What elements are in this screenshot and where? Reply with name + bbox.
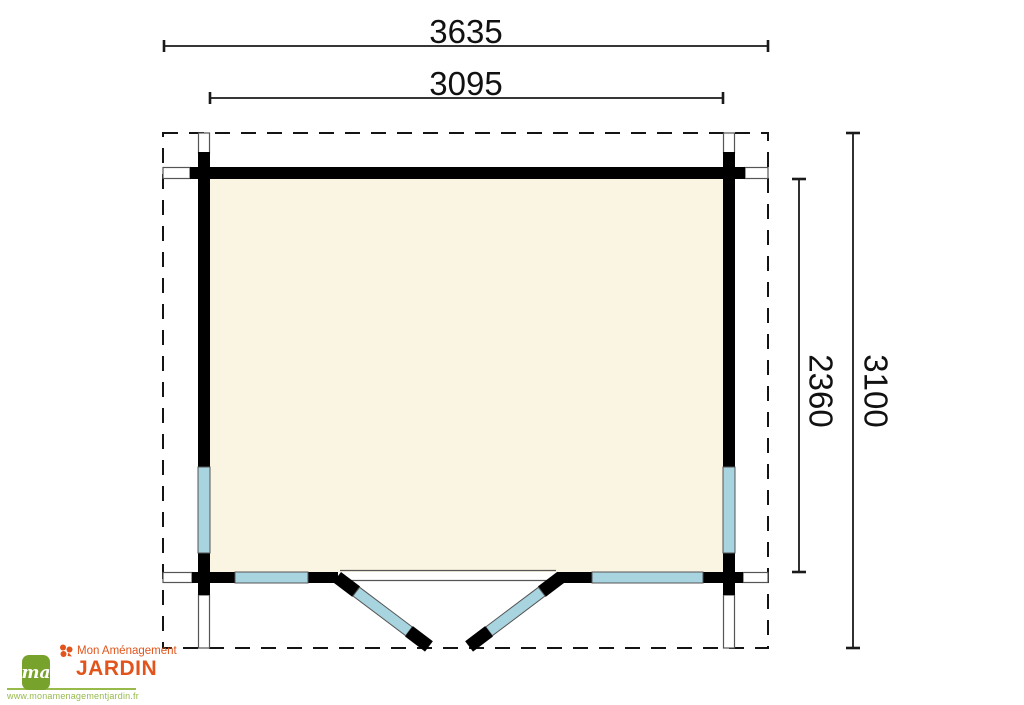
dimension-label-outer-depth: 3100 — [858, 354, 895, 427]
dimension-label-outer-width: 3635 — [429, 13, 502, 50]
dimension-outer-width: 3635 — [164, 13, 768, 52]
window-front-right — [592, 572, 703, 583]
wall-front-left-jamb — [308, 572, 338, 583]
logo-monogram-badge: ma — [22, 655, 50, 690]
floorplan-canvas: 3635 3095 2360 3100 ma — [0, 0, 1024, 705]
logo-monogram-text: ma — [22, 663, 51, 683]
log-end-stub — [745, 168, 768, 179]
log-end-stub — [199, 595, 210, 648]
log-end-stub — [163, 573, 192, 583]
dimension-outer-depth: 3100 — [846, 133, 895, 648]
window-front-left — [235, 572, 308, 583]
dimension-label-inner-width: 3095 — [429, 65, 502, 102]
logo-brand-line2: JARDIN — [76, 657, 157, 681]
wall-back — [190, 167, 745, 179]
dimension-inner-width: 3095 — [210, 65, 723, 104]
dimension-label-inner-depth: 2360 — [803, 354, 840, 427]
window-left-side — [198, 467, 210, 553]
wall-right-upper — [723, 152, 735, 467]
window-right-side — [723, 467, 735, 553]
log-end-stub — [743, 573, 768, 583]
logo-brand-line1: Mon Aménagement — [77, 645, 177, 657]
wall-front-left-corner — [192, 572, 235, 583]
door-panel — [353, 587, 412, 636]
door-leaf-right — [465, 572, 565, 652]
door-panel — [486, 587, 545, 636]
log-end-stub — [199, 133, 210, 153]
floorplan-drawing: 3635 3095 2360 3100 — [0, 0, 1024, 705]
log-end-stub — [724, 133, 735, 153]
dimension-inner-depth: 2360 — [792, 179, 840, 572]
wall-left-upper — [198, 152, 210, 467]
log-end-stub — [724, 595, 735, 648]
door-leaf-left — [333, 572, 433, 652]
clover-icon — [58, 643, 74, 659]
floor-area — [210, 179, 723, 572]
wall-front-right-corner — [703, 572, 743, 583]
logo-url: www.monamenagementjardin.fr — [7, 691, 139, 701]
brand-logo: ma Mon Aménagement JARDIN www.monamenage… — [7, 642, 152, 702]
log-end-stub — [163, 168, 190, 179]
